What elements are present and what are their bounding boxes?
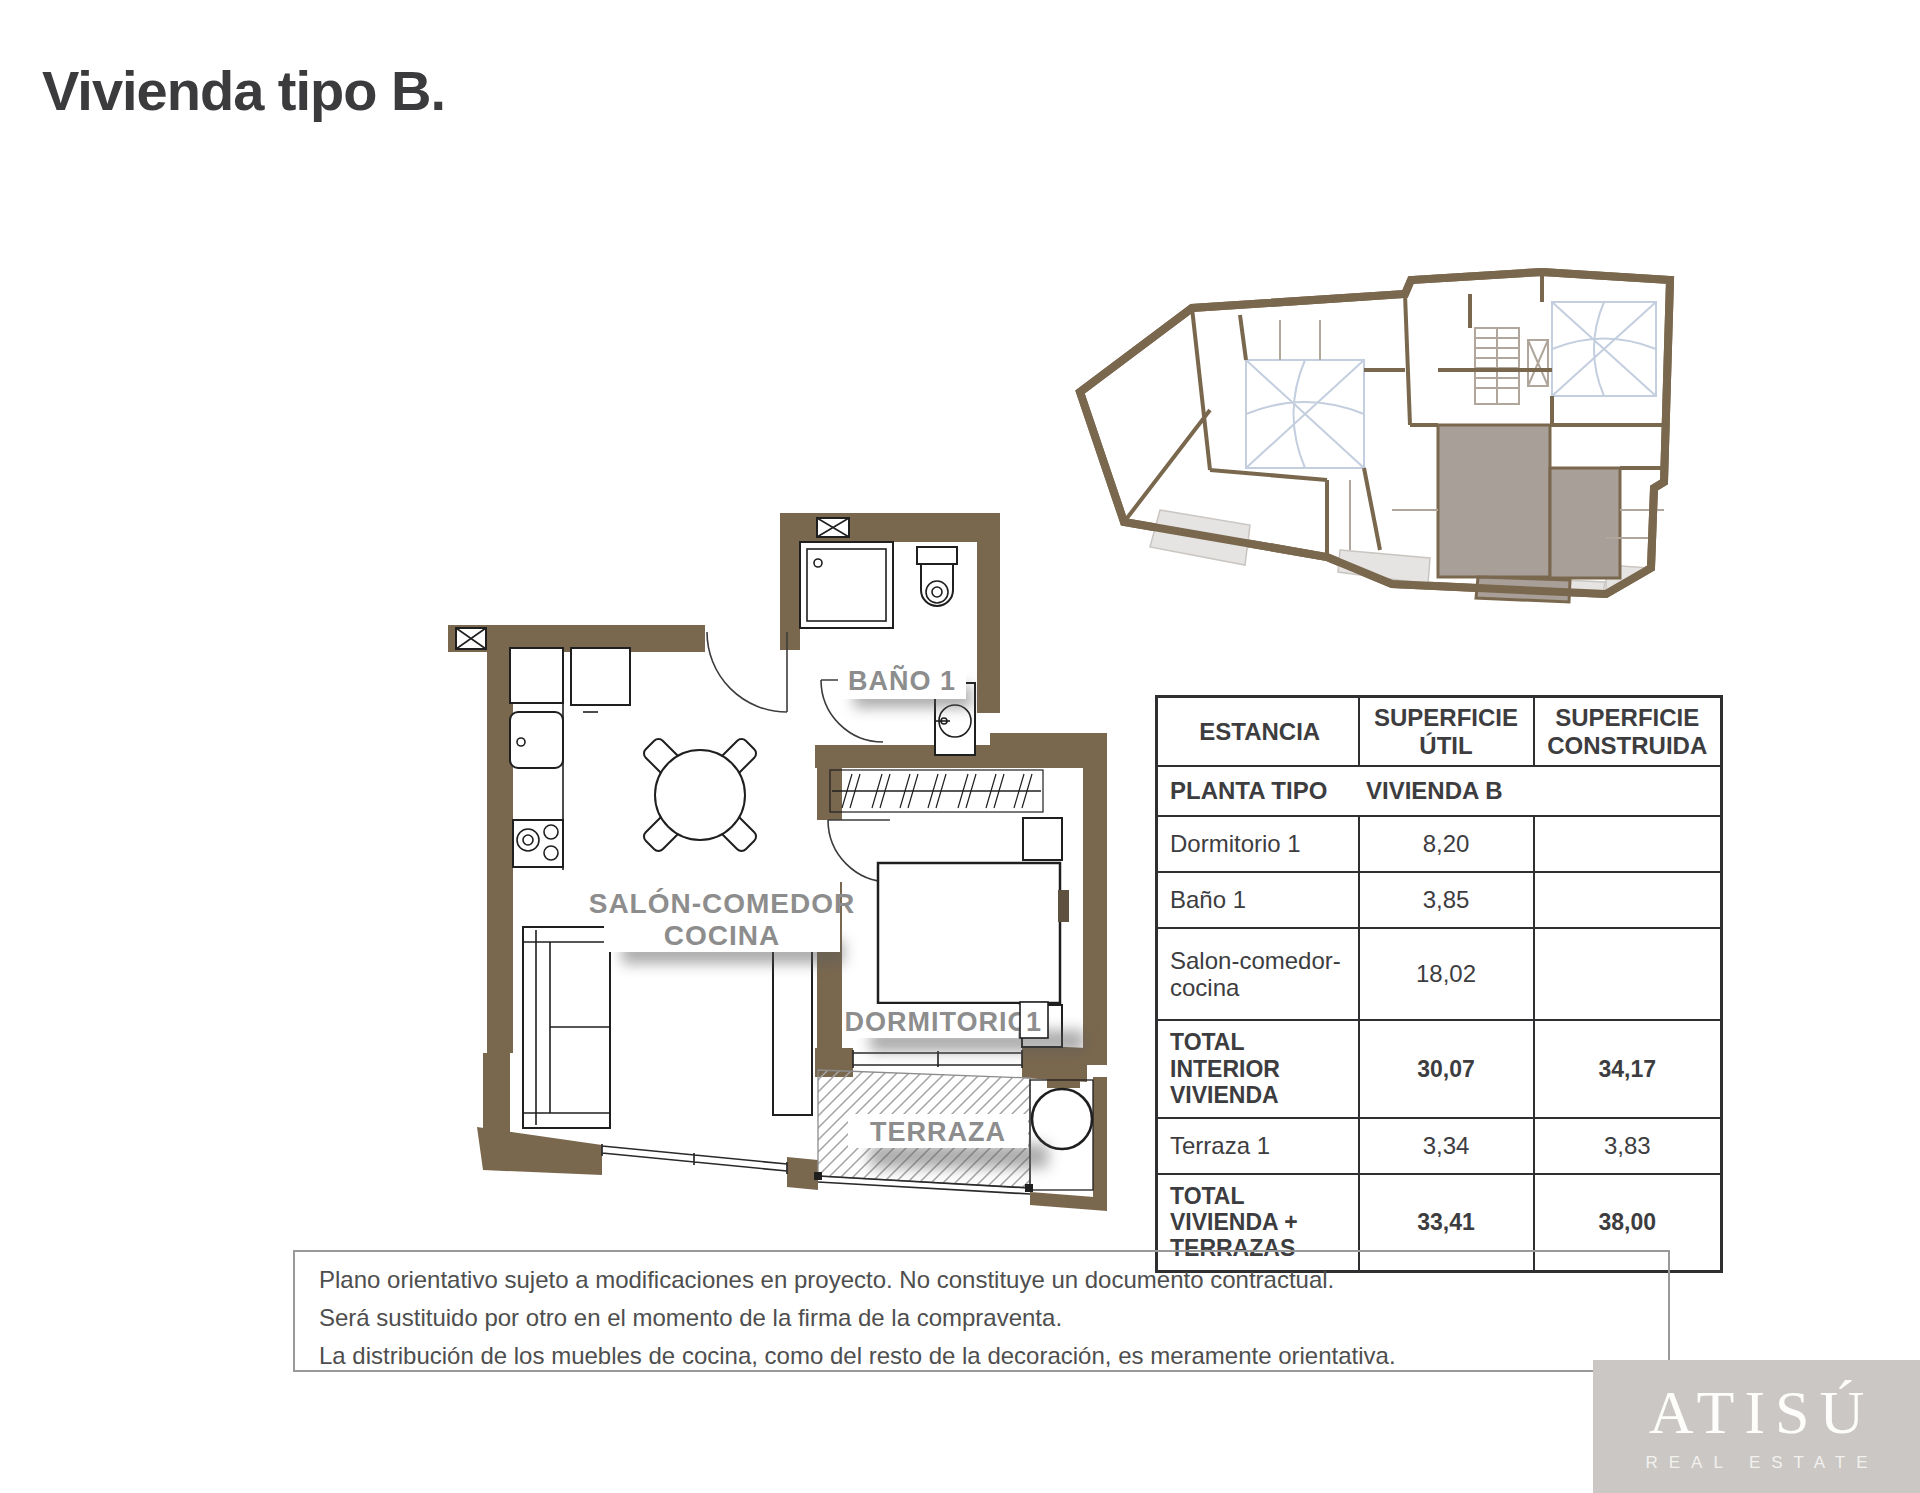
living-window bbox=[602, 1143, 787, 1175]
floorplan-svg: BAÑO 1 SALÓN-COMEDOR COCINA DORMITORIO 1… bbox=[370, 400, 1130, 1215]
header-estancia: ESTANCIA bbox=[1157, 697, 1359, 767]
svg-text:COCINA: COCINA bbox=[664, 920, 780, 951]
wardrobe bbox=[830, 770, 1043, 812]
table-plant-row: PLANTA TIPO VIVIENDA B bbox=[1157, 766, 1722, 816]
header-superficie-construida: SUPERFICIE CONSTRUIDA bbox=[1534, 697, 1722, 767]
page-title: Vivienda tipo B. bbox=[42, 58, 445, 123]
disclaimer-line: Será sustituido por otro en el momento d… bbox=[319, 1299, 1648, 1337]
headboard-mark bbox=[1058, 890, 1069, 922]
toilet-icon bbox=[917, 547, 957, 606]
atisu-logo: ATISÚ REAL ESTATE bbox=[1593, 1360, 1920, 1493]
logo-tagline: REAL ESTATE bbox=[1645, 1453, 1878, 1473]
disclaimer-box: Plano orientativo sujeto a modificacione… bbox=[293, 1250, 1670, 1372]
plant-label: PLANTA TIPO bbox=[1170, 777, 1366, 805]
shower-icon bbox=[800, 542, 893, 628]
bathroom-label: BAÑO 1 bbox=[838, 661, 972, 708]
table-row: Terraza 1 3,34 3,83 bbox=[1157, 1118, 1722, 1174]
svg-text:SALÓN-COMEDOR: SALÓN-COMEDOR bbox=[589, 888, 856, 919]
building-overview-svg bbox=[1050, 220, 1740, 615]
terrace-table bbox=[1032, 1089, 1092, 1149]
tv-unit bbox=[773, 943, 812, 1115]
header-superficie-util: SUPERFICIE ÚTIL bbox=[1359, 697, 1534, 767]
table-row: Salon-comedor-cocina 18,02 bbox=[1157, 928, 1722, 1020]
svg-text:TERRAZA: TERRAZA bbox=[870, 1117, 1006, 1147]
dining-table bbox=[641, 736, 758, 853]
sofa bbox=[523, 927, 610, 1128]
svg-text:BAÑO 1: BAÑO 1 bbox=[848, 665, 956, 696]
logo-wordmark: ATISÚ bbox=[1649, 1381, 1875, 1443]
terrace-label: TERRAZA bbox=[848, 1114, 1048, 1168]
brochure-page: Vivienda tipo B. bbox=[0, 0, 1920, 1493]
plant-value: VIVIENDA B bbox=[1366, 777, 1502, 805]
nightstand bbox=[1023, 818, 1062, 860]
living-label: SALÓN-COMEDOR COCINA bbox=[589, 882, 856, 964]
table-row: Baño 1 3,85 bbox=[1157, 872, 1722, 928]
disclaimer-line: La distribución de los muebles de cocina… bbox=[319, 1337, 1648, 1375]
svg-text:DORMITORIO: DORMITORIO bbox=[845, 1007, 1030, 1037]
svg-text:1: 1 bbox=[1026, 1007, 1042, 1037]
entry-door bbox=[707, 632, 787, 712]
table-header-row: ESTANCIA SUPERFICIE ÚTIL SUPERFICIE CONS… bbox=[1157, 697, 1722, 767]
surface-table: ESTANCIA SUPERFICIE ÚTIL SUPERFICIE CONS… bbox=[1155, 695, 1723, 1273]
bed bbox=[878, 863, 1069, 1003]
table-total-row: TOTAL INTERIOR VIVIENDA 30,07 34,17 bbox=[1157, 1020, 1722, 1117]
table-row: Dormitorio 1 8,20 bbox=[1157, 816, 1722, 872]
disclaimer-line: Plano orientativo sujeto a modificacione… bbox=[319, 1261, 1648, 1299]
stove-icon bbox=[513, 820, 563, 867]
